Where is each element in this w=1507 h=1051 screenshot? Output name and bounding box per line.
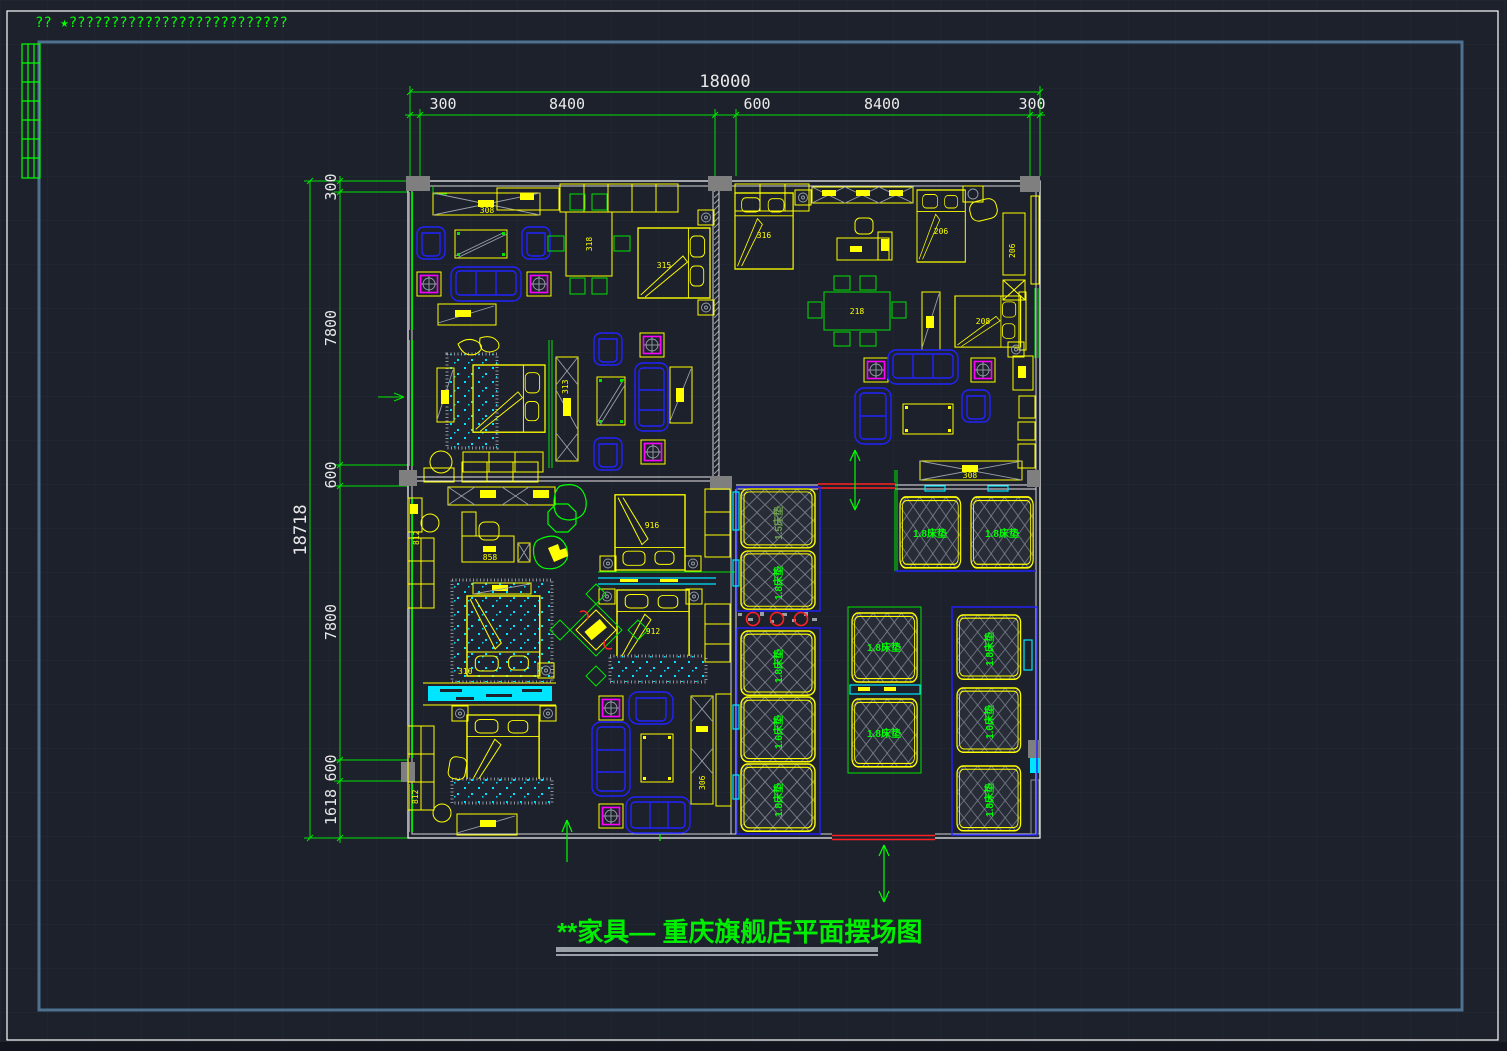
svg-text:7800: 7800 — [322, 310, 340, 346]
svg-text:300: 300 — [322, 173, 340, 200]
svg-text:313: 313 — [561, 379, 570, 394]
svg-text:600: 600 — [322, 461, 340, 488]
drawing-title: **家具— 重庆旗舰店平面摆场图 — [556, 917, 922, 956]
svg-text:206: 206 — [934, 227, 949, 236]
svg-text:300: 300 — [1018, 95, 1045, 113]
svg-text:8400: 8400 — [864, 95, 900, 113]
svg-text:1618: 1618 — [322, 789, 340, 825]
side-table — [599, 804, 623, 828]
side-table — [417, 272, 441, 296]
side-table — [971, 358, 995, 382]
svg-text:318: 318 — [585, 237, 594, 252]
svg-text:1.8床垫: 1.8床垫 — [772, 649, 785, 683]
svg-text:1.8床垫: 1.8床垫 — [983, 783, 996, 817]
svg-text:308: 308 — [480, 206, 495, 215]
svg-text:7800: 7800 — [322, 604, 340, 640]
svg-text:310: 310 — [458, 667, 473, 676]
svg-text:1.8床垫: 1.8床垫 — [772, 566, 785, 600]
svg-text:306: 306 — [698, 775, 707, 790]
cabinet-detail — [520, 193, 534, 200]
svg-text:300: 300 — [429, 95, 456, 113]
bottom-band — [0, 1042, 1507, 1051]
svg-text:912: 912 — [646, 627, 661, 636]
svg-text:858: 858 — [483, 553, 498, 562]
title-underline-2 — [556, 954, 878, 956]
svg-text:1.6床垫: 1.6床垫 — [983, 705, 996, 739]
cad-canvas[interactable]: ?? ★?????????????????????????? 18000 300… — [0, 0, 1507, 1051]
svg-text:1.8床垫: 1.8床垫 — [983, 632, 996, 666]
svg-text:206: 206 — [1008, 243, 1017, 258]
dim-overall-top: 18000 — [699, 72, 750, 92]
side-table — [864, 358, 888, 382]
svg-text:1.8床垫: 1.8床垫 — [913, 527, 947, 540]
rug — [610, 656, 706, 682]
note-text: ?? ★?????????????????????????? — [35, 15, 288, 31]
title-underline — [556, 947, 878, 952]
svg-text:600: 600 — [322, 754, 340, 781]
dim-overall-left: 18718 — [291, 504, 311, 555]
svg-text:1.8床垫: 1.8床垫 — [772, 783, 785, 817]
svg-text:916: 916 — [645, 521, 660, 530]
svg-text:316: 316 — [757, 231, 772, 240]
svg-text:8400: 8400 — [549, 95, 585, 113]
title-text: **家具— 重庆旗舰店平面摆场图 — [557, 917, 922, 947]
svg-text:315: 315 — [657, 261, 672, 270]
side-table — [641, 440, 665, 464]
svg-text:1.8床垫: 1.8床垫 — [985, 527, 1019, 540]
cad-application: ?? ★?????????????????????????? 18000 300… — [0, 0, 1507, 1051]
side-table — [640, 333, 664, 357]
svg-text:812: 812 — [411, 789, 420, 804]
svg-text:1.5床垫: 1.5床垫 — [772, 506, 785, 540]
svg-text:1.8床垫: 1.8床垫 — [867, 641, 901, 654]
side-table — [527, 272, 551, 296]
rug — [452, 779, 552, 803]
svg-text:600: 600 — [743, 95, 770, 113]
svg-text:1.8床垫: 1.8床垫 — [867, 727, 901, 740]
side-table — [599, 696, 623, 720]
svg-text:1.6床垫: 1.6床垫 — [772, 715, 785, 749]
svg-text:208: 208 — [976, 317, 991, 326]
svg-text:218: 218 — [850, 307, 865, 316]
svg-text:308: 308 — [963, 471, 978, 480]
